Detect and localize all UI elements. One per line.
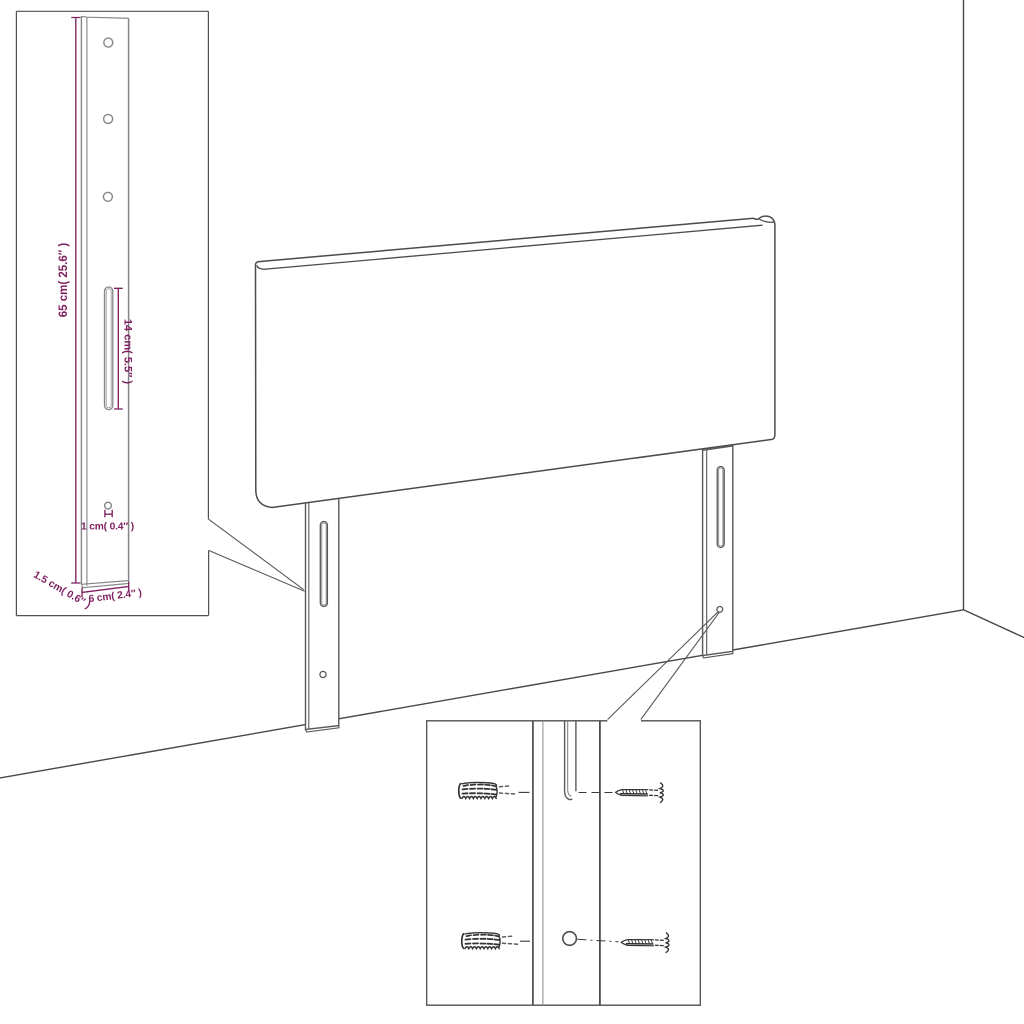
svg-text:14 cm( 5.5″ ): 14 cm( 5.5″ ) bbox=[121, 319, 133, 385]
svg-text:1 cm( 0.4″ ): 1 cm( 0.4″ ) bbox=[81, 521, 134, 532]
svg-text:65 cm( 25.6″ ): 65 cm( 25.6″ ) bbox=[58, 243, 70, 318]
